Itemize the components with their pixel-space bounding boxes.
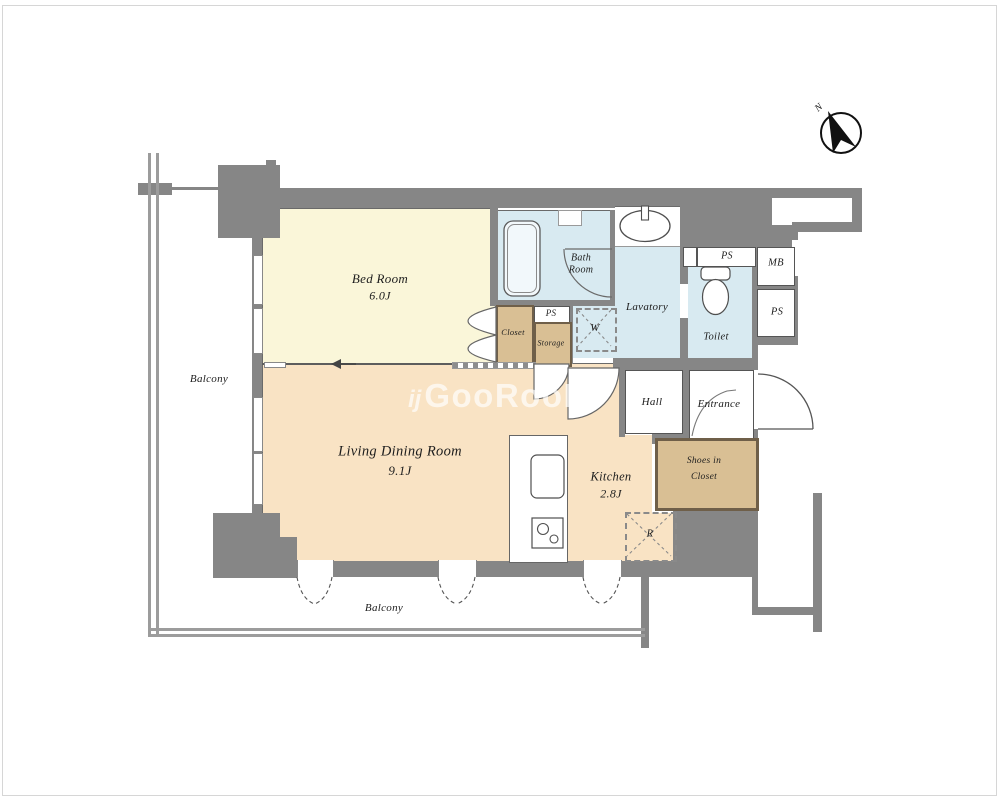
hall-label: Hall	[642, 396, 663, 408]
balcony-left-label: Balcony	[190, 373, 228, 385]
bathtub-outer	[504, 221, 540, 296]
entrance-door-arc	[758, 374, 813, 429]
shoes-in-closet-label-line1: Shoes in	[687, 456, 721, 466]
ps-toilet-label: PS	[721, 251, 733, 262]
living-dining-area-label: 9.1J	[388, 463, 411, 479]
partition-arrow	[331, 359, 341, 369]
shoes-in-closet-label-line2: Closet	[691, 472, 717, 482]
ps-middle-label: PS	[546, 308, 557, 318]
kitchen-area-label: 2.8J	[600, 487, 622, 502]
bedroom-label: Bed Room	[352, 271, 408, 287]
bath-room-label-line2: Room	[569, 265, 594, 276]
balcony-bottom-label: Balcony	[365, 602, 403, 614]
entrance-label: Entrance	[698, 398, 741, 410]
toilet-tank	[701, 267, 730, 280]
entrance-step-curve	[692, 390, 736, 436]
window-swing-1	[297, 577, 332, 604]
toilet-label: Toilet	[703, 332, 728, 343]
closet-label: Closet	[501, 327, 525, 337]
kitchen-sink	[531, 455, 564, 498]
living-dining-label: Living Dining Room	[338, 444, 462, 461]
watermark-icon: ij	[408, 388, 421, 412]
storage-label: Storage	[538, 339, 565, 348]
window-swing-2	[438, 577, 475, 604]
kitchen-label: Kitchen	[591, 470, 632, 485]
lavatory-label: Lavatory	[626, 301, 668, 313]
refrigerator-label: R	[647, 529, 654, 540]
closet-door-arc-top	[468, 307, 496, 335]
closet-door-arc-bottom	[468, 335, 496, 362]
toilet-bowl	[703, 280, 729, 315]
mb-label: MB	[768, 258, 784, 269]
watermark-text: GooRooM	[424, 379, 592, 412]
ps-right-label: PS	[771, 307, 783, 318]
bedroom-area-label: 6.0J	[369, 289, 391, 304]
window-swing-3	[583, 577, 620, 604]
compass-north-label: N	[812, 101, 826, 115]
watermark: ij GooRooM	[408, 379, 592, 412]
washing-machine-label: W	[590, 322, 599, 334]
floor-plan: N ij GooRooM Bed Room 6.0J Living Dining…	[0, 0, 999, 801]
bath-room-label-line1: Bath	[571, 253, 591, 264]
lavatory-faucet	[642, 206, 649, 220]
